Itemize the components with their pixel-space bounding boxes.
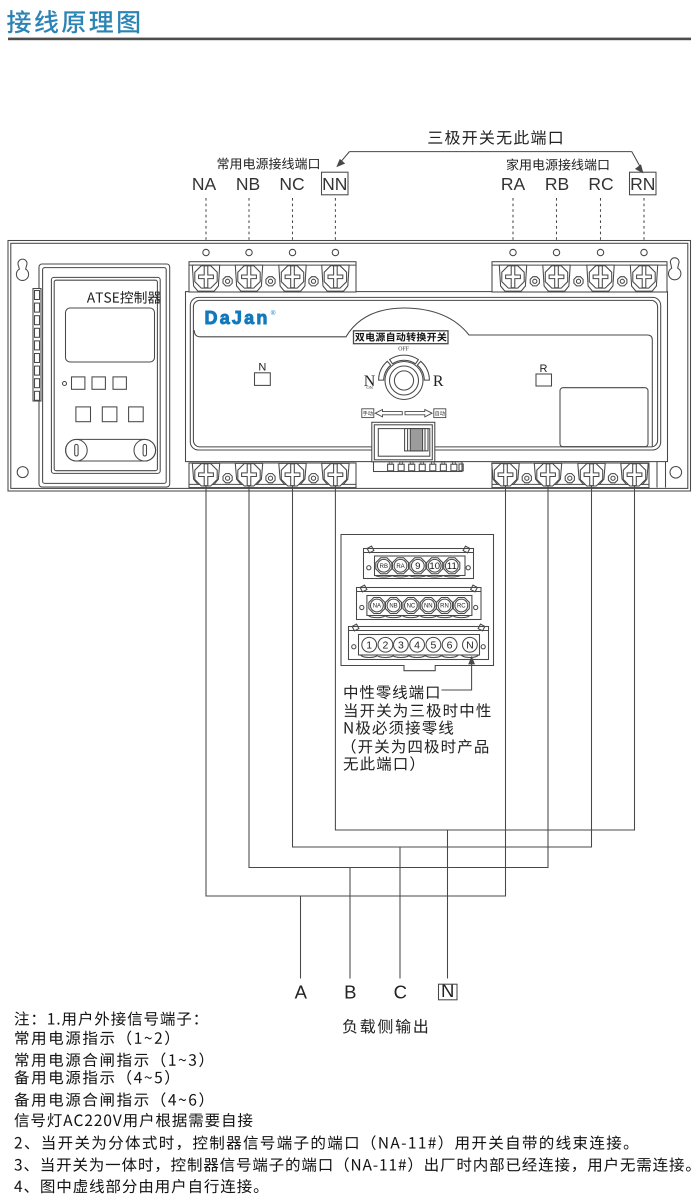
- svg-text:NA: NA: [192, 174, 217, 194]
- svg-text:N: N: [258, 361, 266, 373]
- svg-text:A: A: [295, 982, 308, 1003]
- svg-text:9: 9: [415, 561, 420, 572]
- svg-text:NB: NB: [236, 174, 260, 194]
- svg-text:NN: NN: [322, 174, 347, 194]
- svg-text:NN: NN: [424, 604, 433, 610]
- svg-text:B: B: [344, 982, 356, 1003]
- svg-text:R: R: [433, 373, 444, 390]
- svg-text:RA: RA: [396, 564, 404, 570]
- svg-text:C: C: [394, 982, 407, 1003]
- svg-text:RC: RC: [588, 174, 613, 194]
- svg-text:6: 6: [447, 640, 453, 652]
- svg-text:5: 5: [430, 640, 436, 652]
- svg-text:4: 4: [414, 640, 420, 652]
- svg-text:ON: ON: [366, 385, 373, 390]
- svg-text:2: 2: [382, 640, 388, 652]
- svg-text:OFF: OFF: [398, 347, 409, 353]
- svg-text:1: 1: [366, 640, 372, 652]
- svg-text:RB: RB: [545, 174, 569, 194]
- svg-text:R: R: [540, 363, 548, 375]
- svg-text:DaJan: DaJan: [205, 308, 270, 328]
- svg-text:RA: RA: [501, 174, 526, 194]
- svg-text:RN: RN: [630, 174, 655, 194]
- svg-text:®: ®: [271, 309, 276, 317]
- svg-text:NC: NC: [279, 174, 304, 194]
- svg-text:N: N: [466, 640, 474, 652]
- svg-text:RB: RB: [380, 564, 388, 570]
- svg-text:NB: NB: [389, 604, 397, 610]
- svg-text:RN: RN: [440, 604, 449, 610]
- svg-text:N: N: [441, 980, 454, 1001]
- svg-text:11: 11: [447, 561, 457, 572]
- svg-text:10: 10: [429, 561, 440, 572]
- svg-text:3: 3: [398, 640, 404, 652]
- svg-text:NA: NA: [373, 604, 381, 610]
- svg-text:NC: NC: [407, 604, 416, 610]
- svg-text:RC: RC: [457, 604, 466, 610]
